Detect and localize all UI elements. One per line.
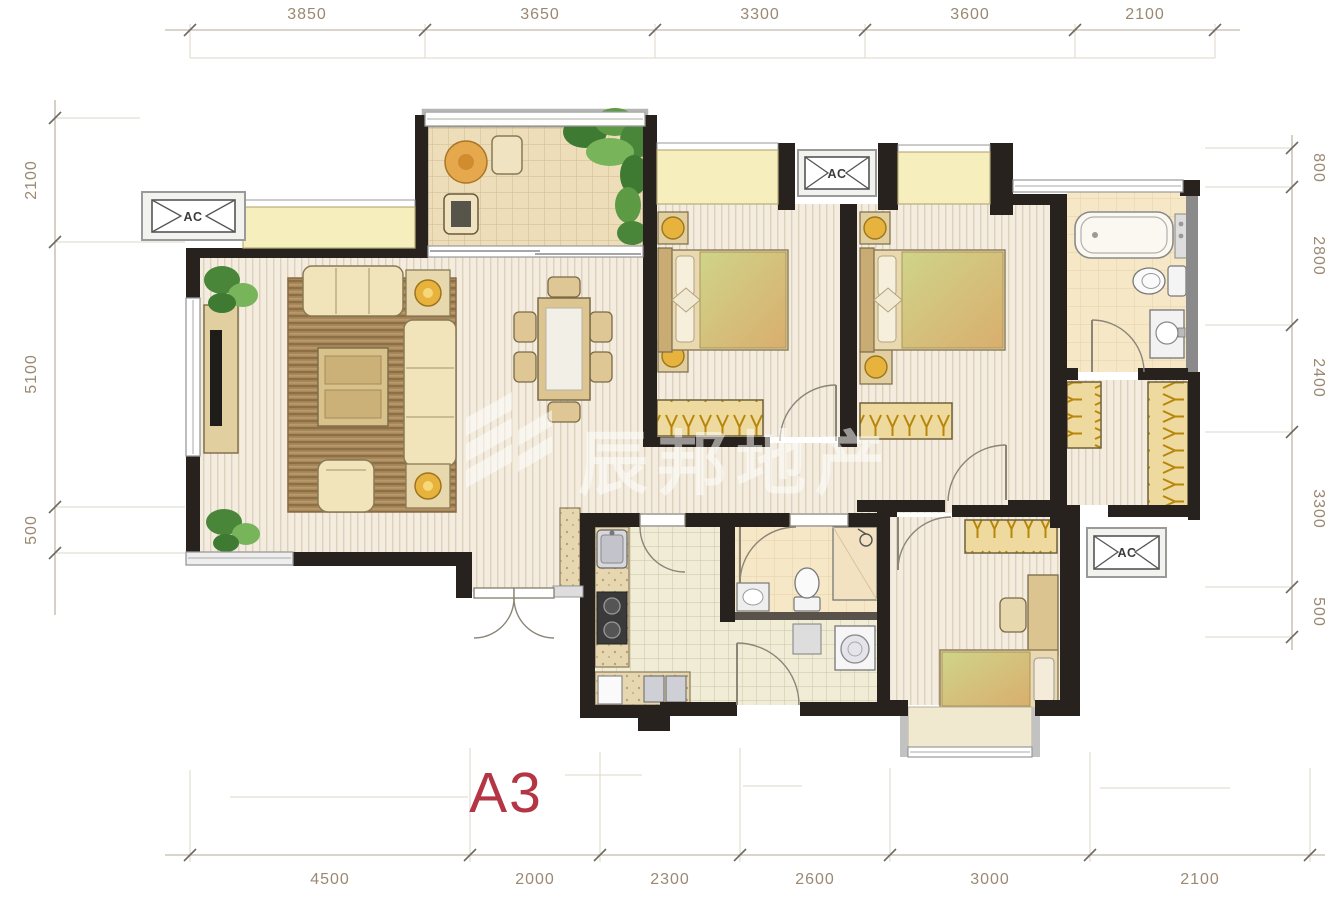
bed-single: [940, 650, 1058, 708]
tv-console: [204, 305, 238, 453]
dimension-chain-top: 3850 3650 3300 3600 2100: [165, 6, 1240, 58]
window-living-bottom: [186, 552, 293, 565]
coffee-table: [318, 348, 388, 426]
balcony-railing-top: [425, 112, 645, 126]
dim-bottom-4: 2600: [795, 871, 835, 888]
dim-right-1: 800: [1310, 153, 1327, 183]
dimension-chain-left: 2100 5100 500: [23, 100, 185, 615]
dimension-chain-bottom: 4500 2000 2300 2600 3000 2100: [165, 748, 1325, 888]
room-closet: [1067, 380, 1188, 508]
room-bathroom-main: [1067, 192, 1188, 372]
dim-left-2: 5100: [23, 354, 40, 394]
dim-top-4: 3600: [950, 6, 990, 23]
dimension-chain-right: 800 2800 2400 3300 500: [1205, 135, 1327, 650]
washing-machine: [835, 626, 875, 670]
dim-right-3: 2400: [1310, 358, 1327, 398]
ac-label: AC: [1117, 546, 1136, 560]
room-bedroom-3: [890, 517, 1060, 708]
kitchen-basin-1: [644, 676, 664, 702]
dim-right-5: 500: [1310, 597, 1327, 627]
patio-chair-2: [444, 194, 478, 234]
plan-title: A3: [469, 761, 543, 825]
closet-wardrobe-right: [1148, 382, 1188, 508]
sink-2: [737, 583, 769, 611]
ac-unit-bedroom-3: AC: [1087, 528, 1166, 577]
entry-cabinet: [793, 624, 821, 654]
watermark-text: 辰邦地产: [578, 423, 894, 505]
dim-top-2: 3650: [520, 6, 560, 23]
window-balcony-bottom: [908, 747, 1032, 757]
bay-window-bedroom-1: [657, 143, 778, 204]
toilet-main: [1133, 266, 1186, 296]
window-bathroom: [1013, 180, 1183, 192]
dim-left-3: 500: [23, 515, 40, 545]
kitchen-sink: [597, 530, 627, 568]
ac-label: AC: [827, 167, 846, 181]
bay-window-living: [243, 200, 415, 248]
fridge: [598, 676, 622, 704]
room-bedroom-1: [657, 204, 840, 437]
window-living-left: [186, 298, 200, 456]
stove: [597, 592, 627, 644]
dim-bottom-6: 2100: [1180, 871, 1220, 888]
door-sill: [553, 586, 583, 597]
toilet-2: [794, 568, 820, 611]
sideboard: [560, 508, 580, 586]
dim-top-5: 2100: [1125, 6, 1165, 23]
dim-left-1: 2100: [23, 160, 40, 200]
dim-top-3: 3300: [740, 6, 780, 23]
bath2-wall: [735, 612, 877, 620]
construction-lines: [230, 775, 1230, 797]
patio-table: [445, 141, 487, 183]
desk-chair: [1000, 598, 1026, 632]
dim-bottom-3: 2300: [650, 871, 690, 888]
bath-shelf: [1175, 214, 1187, 258]
ac-unit-living: AC: [142, 192, 245, 240]
bay-window-bedroom-2: [898, 145, 990, 204]
floorplan-page: 3850 3650 3300 3600 2100 4500 2000 2300 …: [0, 0, 1333, 904]
side-table-lamp-2: [406, 464, 450, 508]
patio-chair: [492, 136, 522, 174]
wardrobe-3: [965, 520, 1057, 553]
ac-unit-bedrooms: AC: [798, 150, 876, 196]
desk: [1028, 575, 1058, 655]
bathtub: [1075, 212, 1173, 258]
side-table-lamp-1: [406, 270, 450, 316]
sliding-door-balcony: [428, 246, 643, 257]
dim-bottom-2: 2000: [515, 871, 555, 888]
ac-label: AC: [183, 210, 202, 224]
dim-right-4: 3300: [1310, 489, 1327, 529]
dim-bottom-1: 4500: [310, 871, 350, 888]
shower-stall: [833, 527, 877, 600]
tv: [210, 330, 222, 426]
sink-main: [1150, 310, 1185, 358]
kitchen-basin-2: [666, 676, 686, 702]
room-balcony-top: [423, 108, 652, 256]
dim-right-2: 2800: [1310, 236, 1327, 276]
dim-bottom-5: 3000: [970, 871, 1010, 888]
closet-wardrobe-left: [1067, 382, 1101, 448]
entry-double-door: [474, 588, 554, 638]
dim-top-1: 3850: [287, 6, 327, 23]
